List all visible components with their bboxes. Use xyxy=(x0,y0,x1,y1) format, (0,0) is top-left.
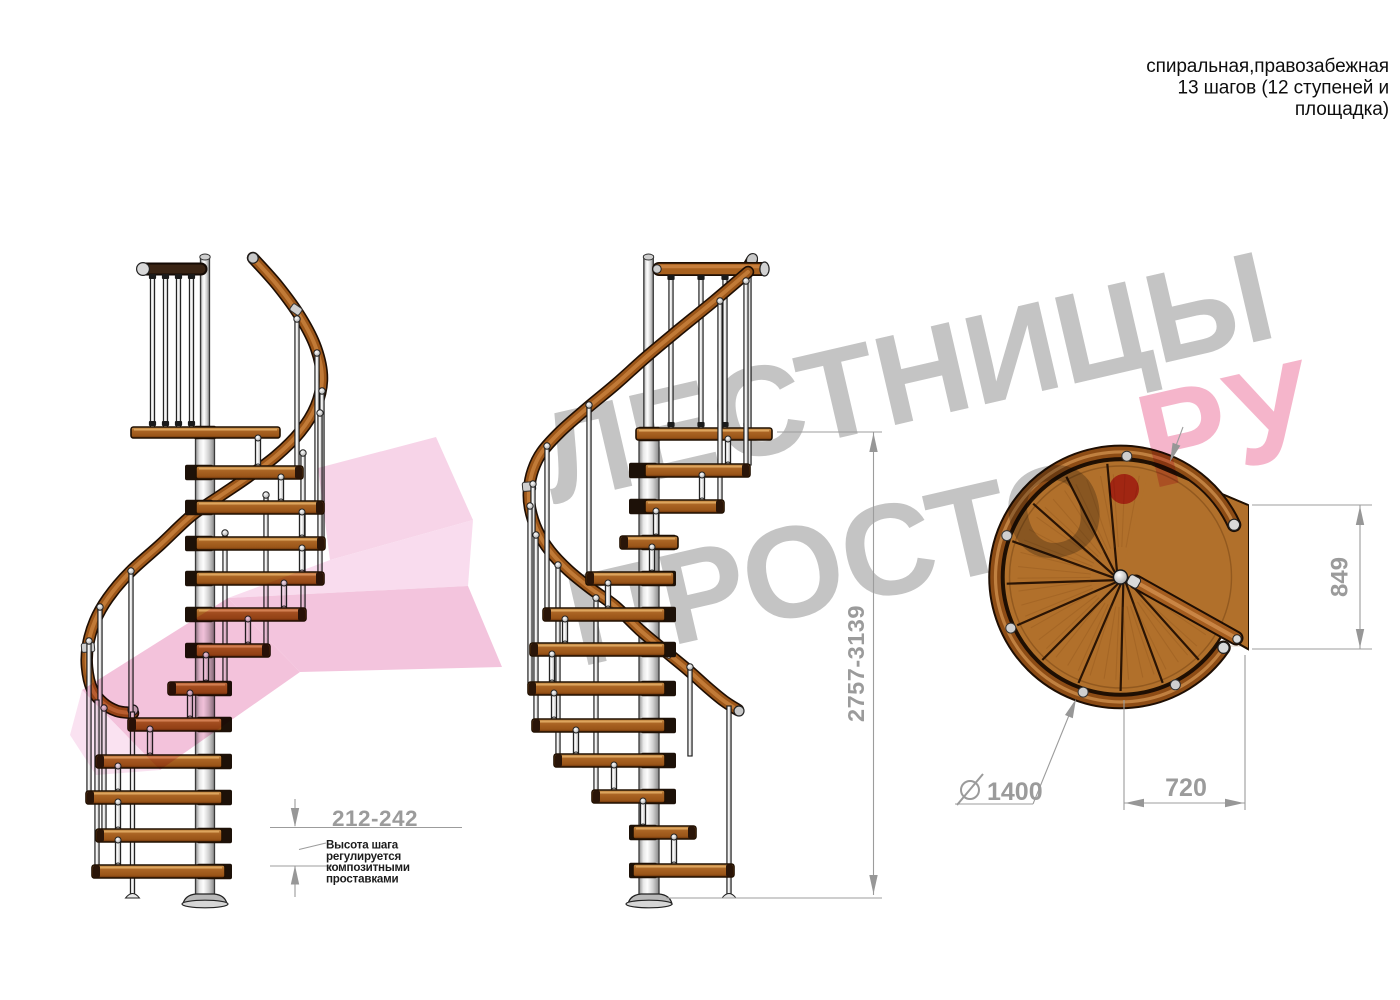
svg-text:720: 720 xyxy=(1165,774,1207,802)
svg-text:2757-3139: 2757-3139 xyxy=(843,605,869,722)
svg-text:849: 849 xyxy=(1326,557,1353,597)
svg-text:1400: 1400 xyxy=(987,778,1043,806)
svg-text:проставками: проставками xyxy=(326,872,399,885)
svg-text:спиральная,правозабежная: спиральная,правозабежная xyxy=(1146,56,1389,77)
svg-text:площадка): площадка) xyxy=(1295,99,1389,120)
svg-text:212-242: 212-242 xyxy=(332,806,418,831)
svg-text:13 шагов (12 ступеней и: 13 шагов (12 ступеней и xyxy=(1178,78,1389,99)
